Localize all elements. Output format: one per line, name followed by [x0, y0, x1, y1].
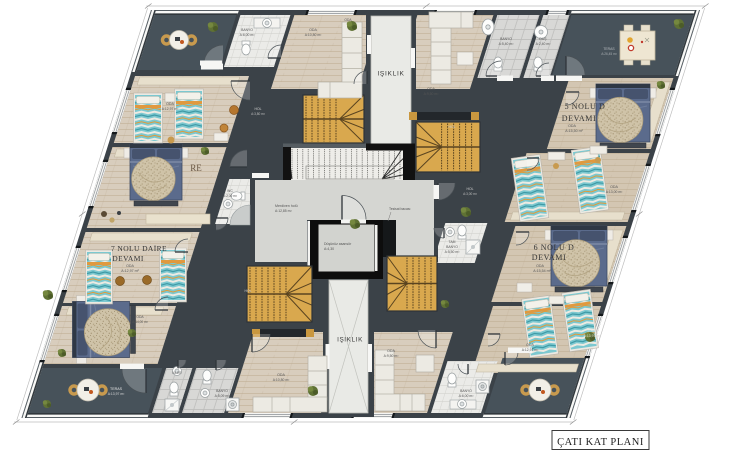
svg-text:ODA: ODA	[126, 264, 134, 268]
svg-text:BANYO: BANYO	[460, 389, 472, 393]
svg-text:6 NOLU D: 6 NOLU D	[534, 243, 575, 252]
svg-text:A:14,00 m²: A:14,00 m²	[132, 320, 148, 324]
svg-text:DEVAMI: DEVAMI	[112, 254, 144, 263]
svg-text:A:5,50 m²: A:5,50 m²	[445, 250, 461, 254]
svg-text:A:5,40 m²: A:5,40 m²	[499, 42, 515, 46]
svg-text:ODA: ODA	[166, 102, 174, 106]
svg-text:BANYO: BANYO	[241, 28, 253, 32]
svg-text:ODA: ODA	[536, 264, 544, 268]
svg-text:ÇATI KAT PLANI: ÇATI KAT PLANI	[557, 437, 644, 448]
svg-text:Düşünüz asansör: Düşünüz asansör	[324, 242, 352, 246]
svg-text:ODA: ODA	[387, 349, 395, 353]
svg-text:A:2,40 m²: A:2,40 m²	[536, 42, 552, 46]
svg-text:A:3,00 m²: A:3,00 m²	[463, 192, 477, 196]
svg-text:ODA: ODA	[136, 315, 144, 319]
svg-text:A:12,97 m²: A:12,97 m²	[162, 107, 179, 111]
svg-text:TERAS: TERAS	[603, 47, 615, 51]
svg-text:5 NOLU D: 5 NOLU D	[565, 102, 606, 111]
svg-text:DUŞ: DUŞ	[539, 37, 547, 41]
svg-text:A:12,97 m²: A:12,97 m²	[522, 348, 539, 352]
svg-text:IŞIKLIK: IŞIKLIK	[337, 337, 363, 344]
svg-text:A:13,00 m²: A:13,00 m²	[606, 190, 623, 194]
svg-text:A:6,00 m²: A:6,00 m²	[240, 33, 256, 37]
svg-text:KİLER: KİLER	[172, 370, 182, 375]
svg-text:TERAS: TERAS	[110, 387, 123, 391]
svg-text:DEVAMI: DEVAMI	[562, 114, 597, 123]
svg-text:A:4,30: A:4,30	[324, 247, 334, 251]
svg-text:BANYO: BANYO	[216, 389, 228, 393]
svg-text:A:10,80 m²: A:10,80 m²	[273, 378, 290, 382]
svg-text:A:3,80 m²: A:3,80 m²	[251, 112, 265, 116]
svg-text:A:12,85 m²: A:12,85 m²	[275, 209, 292, 213]
svg-text:A:26,45 m²: A:26,45 m²	[601, 52, 617, 56]
svg-text:7 NOLU DAİRE: 7 NOLU DAİRE	[111, 244, 167, 253]
svg-text:A:12,97 m²: A:12,97 m²	[121, 269, 139, 273]
svg-text:A:9,50 m²: A:9,50 m²	[384, 354, 400, 358]
svg-text:ODA: ODA	[427, 87, 435, 91]
svg-text:HOL: HOL	[467, 187, 474, 191]
svg-text:BANYO: BANYO	[500, 37, 512, 41]
svg-text:A:13,97 m²: A:13,97 m²	[584, 334, 601, 338]
svg-text:ODA: ODA	[344, 18, 352, 22]
svg-text:BANYO: BANYO	[446, 245, 458, 249]
svg-text:ODA: ODA	[309, 28, 317, 32]
svg-text:TERAS: TERAS	[586, 329, 599, 333]
svg-text:ODA: ODA	[568, 124, 576, 128]
svg-text:TAM: TAM	[449, 240, 456, 244]
svg-text:A:15,54 m²: A:15,54 m²	[533, 269, 551, 273]
svg-text:ODA: ODA	[610, 185, 618, 189]
svg-text:RE: RE	[190, 163, 202, 173]
svg-text:Merdiven holü: Merdiven holü	[275, 204, 298, 208]
svg-text:A:6,00 m²: A:6,00 m²	[459, 394, 475, 398]
svg-text:IŞIKLIK: IŞIKLIK	[377, 71, 404, 78]
svg-text:DEVAMI: DEVAMI	[532, 253, 567, 262]
svg-text:ODA: ODA	[277, 373, 285, 377]
svg-text:A:2,00 m²: A:2,00 m²	[223, 194, 237, 198]
svg-text:HOL: HOL	[255, 107, 262, 111]
svg-text:HOL: HOL	[245, 289, 252, 293]
svg-text:HOL: HOL	[449, 125, 456, 129]
svg-text:A:15,50 m²: A:15,50 m²	[565, 129, 583, 133]
svg-text:A:5,09 m²: A:5,09 m²	[215, 394, 231, 398]
svg-text:A:9,50 m²: A:9,50 m²	[424, 92, 440, 96]
svg-text:WC: WC	[227, 189, 233, 193]
svg-text:A:13,97 m²: A:13,97 m²	[108, 392, 125, 396]
svg-text:ODA: ODA	[526, 343, 534, 347]
svg-text:A:10,80 m²: A:10,80 m²	[305, 33, 322, 37]
svg-text:Tesisat bacası: Tesisat bacası	[389, 207, 411, 211]
